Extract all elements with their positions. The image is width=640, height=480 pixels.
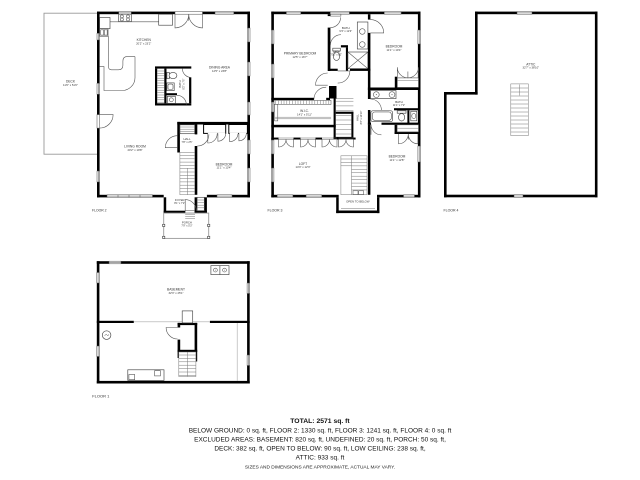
svg-text:7'8" x 2'5": 7'8" x 2'5"	[182, 141, 193, 144]
svg-text:32'7" x 38'10": 32'7" x 38'10"	[522, 66, 539, 70]
svg-text:DINING AREA: DINING AREA	[209, 65, 231, 69]
svg-text:BATH: BATH	[333, 49, 340, 53]
svg-text:KITCHEN: KITCHEN	[137, 38, 152, 42]
svg-text:TOTAL: 2571 sq. ft: TOTAL: 2571 sq. ft	[290, 418, 350, 425]
svg-text:20'2" x 23'2": 20'2" x 23'2"	[136, 42, 151, 46]
svg-text:LIVING ROOM: LIVING ROOM	[124, 145, 146, 149]
svg-text:FLOOR 3: FLOOR 3	[268, 208, 283, 212]
svg-text:EXCLUDED AREAS: BASEMENT: 820: EXCLUDED AREAS: BASEMENT: 820 sq. ft, UN…	[194, 436, 446, 443]
svg-text:12'5" x 16'7": 12'5" x 16'7"	[292, 55, 307, 59]
svg-text:7'9" x 5'3": 7'9" x 5'3"	[181, 225, 192, 228]
svg-text:BEDROOM: BEDROOM	[389, 154, 406, 158]
svg-text:ATTIC: ATTIC	[526, 62, 536, 66]
svg-text:11'1" x 10'4": 11'1" x 10'4"	[387, 48, 402, 52]
svg-text:11'1" x 12'8": 11'1" x 12'8"	[390, 158, 405, 162]
svg-text:BELOW GROUND: 0 sq. ft, FLOOR: BELOW GROUND: 0 sq. ft, FLOOR 2: 1330 sq…	[189, 427, 452, 434]
svg-text:BEDROOM: BEDROOM	[386, 44, 403, 48]
svg-text:BASEMENT: BASEMENT	[167, 288, 185, 292]
svg-text:BEDROOM: BEDROOM	[216, 162, 233, 166]
svg-text:8'3" x 14'10": 8'3" x 14'10"	[360, 111, 363, 125]
svg-text:DECK: DECK	[66, 80, 76, 84]
svg-text:FLOOR 2: FLOOR 2	[92, 208, 107, 212]
svg-text:SIZES AND DIMENSIONS ARE APPRO: SIZES AND DIMENSIONS ARE APPROXIMATE, AC…	[245, 465, 395, 471]
svg-text:8'1" x 7'2": 8'1" x 7'2"	[174, 202, 185, 205]
svg-text:12'5" x 23'8": 12'5" x 23'8"	[212, 69, 227, 73]
svg-text:W.I.C.: W.I.C.	[300, 109, 309, 113]
svg-text:11'1" x 7'2": 11'1" x 7'2"	[393, 103, 405, 107]
svg-text:14'1" x 5'11": 14'1" x 5'11"	[297, 112, 312, 116]
svg-text:7'10" x 6'2": 7'10" x 6'2"	[331, 54, 343, 56]
svg-text:DECK: 382 sq. ft, OPEN TO BELO: DECK: 382 sq. ft, OPEN TO BELOW: 90 sq. …	[214, 445, 426, 452]
svg-text:11'1" x 13'4": 11'1" x 13'4"	[217, 166, 232, 170]
svg-text:ATTIC: 933 sq. ft: ATTIC: 933 sq. ft	[296, 454, 345, 461]
svg-text:8'2" x 7'0": 8'2" x 7'0"	[182, 78, 185, 89]
svg-text:32'3" x 25'1": 32'3" x 25'1"	[168, 291, 183, 295]
svg-text:20'2" x 19'8": 20'2" x 19'8"	[127, 148, 142, 152]
svg-text:FLOOR 4: FLOOR 4	[444, 208, 459, 212]
svg-text:14'3" x 12'3": 14'3" x 12'3"	[295, 165, 310, 169]
svg-text:OPEN TO BELOW: OPEN TO BELOW	[346, 200, 370, 204]
svg-text:9'3" x 12'3": 9'3" x 12'3"	[339, 29, 352, 33]
svg-text:PRIMARY BEDROOM: PRIMARY BEDROOM	[284, 51, 317, 55]
svg-text:11'6" x 51'0": 11'6" x 51'0"	[63, 83, 78, 87]
svg-text:LOFT: LOFT	[299, 162, 307, 166]
svg-text:FLOOR 1: FLOOR 1	[92, 394, 110, 399]
